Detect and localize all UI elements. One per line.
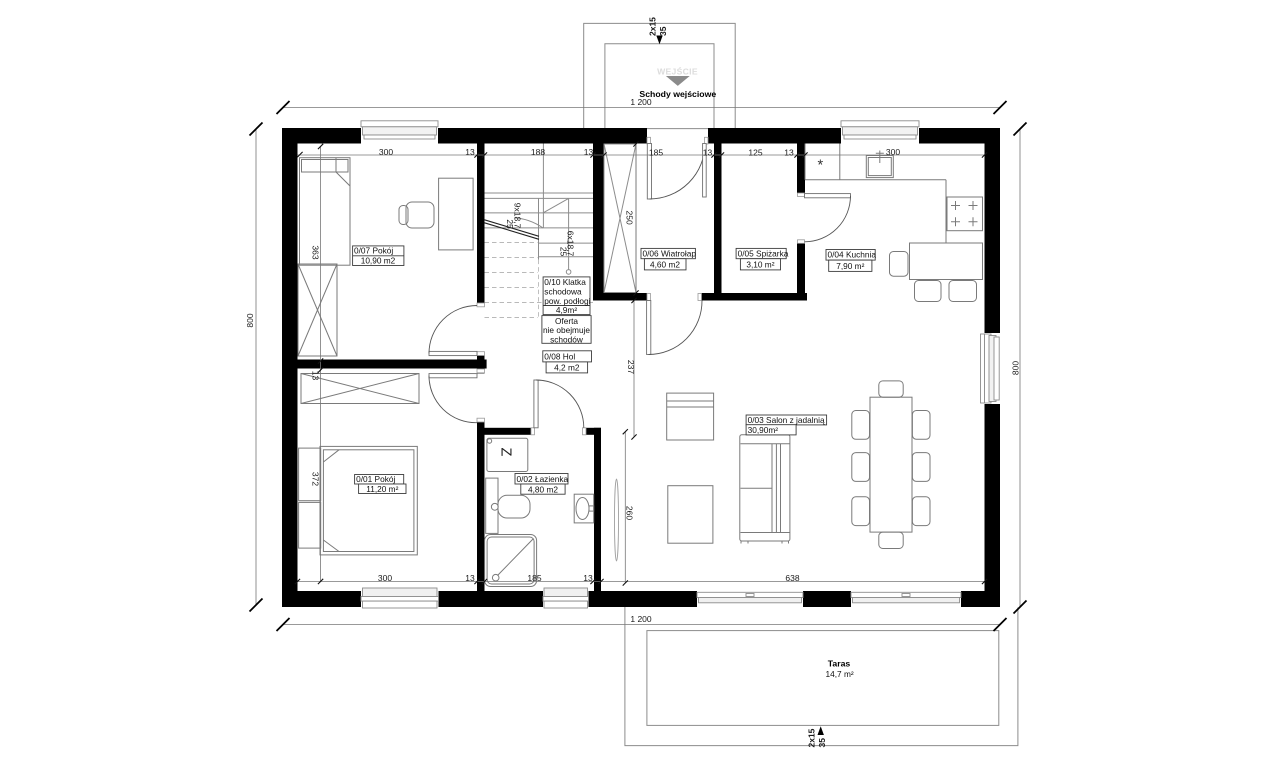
svg-text:3,10 m²: 3,10 m² [746, 260, 774, 270]
svg-text:237: 237 [626, 360, 636, 374]
svg-text:schodowa: schodowa [544, 287, 582, 297]
svg-text:13: 13 [784, 148, 794, 158]
svg-text:0/08 Hol: 0/08 Hol [544, 351, 575, 361]
svg-text:13: 13 [583, 573, 593, 583]
svg-text:25: 25 [558, 247, 568, 257]
svg-text:372: 372 [310, 472, 320, 486]
svg-text:188: 188 [531, 147, 545, 157]
svg-text:0/04 Kuchnia: 0/04 Kuchnia [828, 250, 877, 260]
svg-text:WEJŚCIE: WEJŚCIE [657, 66, 698, 77]
svg-text:300: 300 [379, 147, 393, 157]
svg-text:13: 13 [465, 573, 475, 583]
svg-text:13: 13 [310, 371, 320, 381]
svg-text:35: 35 [658, 26, 668, 36]
svg-text:10,90 m2: 10,90 m2 [361, 255, 396, 265]
svg-text:4,80 m2: 4,80 m2 [528, 484, 558, 494]
svg-text:185: 185 [527, 573, 541, 583]
svg-text:2x15: 2x15 [648, 17, 658, 36]
svg-text:13: 13 [703, 148, 713, 158]
svg-text:800: 800 [1011, 361, 1021, 375]
svg-text:0/10 Klatka: 0/10 Klatka [544, 277, 586, 287]
svg-text:Taras: Taras [828, 659, 851, 669]
svg-text:0/06 Wiatrołap: 0/06 Wiatrołap [643, 248, 697, 258]
svg-text:11,20 m²: 11,20 m² [366, 484, 398, 494]
svg-text:4,60 m2: 4,60 m2 [650, 260, 680, 270]
svg-text:300: 300 [378, 573, 392, 583]
svg-text:0/05 Spiżarka: 0/05 Spiżarka [738, 248, 789, 258]
svg-text:30,90m²: 30,90m² [748, 425, 779, 435]
svg-text:1 200: 1 200 [630, 97, 652, 107]
svg-text:800: 800 [245, 313, 255, 327]
svg-text:Z: Z [498, 448, 514, 457]
svg-text:638: 638 [785, 573, 799, 583]
svg-text:7,90 m²: 7,90 m² [836, 261, 864, 271]
svg-text:4,9m²: 4,9m² [556, 305, 577, 315]
svg-text:300: 300 [886, 147, 900, 157]
svg-text:14,7 m²: 14,7 m² [826, 669, 854, 679]
svg-text:0/02 Łazienka: 0/02 Łazienka [517, 474, 569, 484]
svg-text:1 200: 1 200 [630, 614, 652, 624]
svg-text:260: 260 [625, 506, 635, 520]
svg-text:2x15: 2x15 [807, 728, 817, 747]
svg-text:13: 13 [584, 147, 594, 157]
svg-text:*: * [818, 158, 824, 174]
svg-text:363: 363 [310, 245, 320, 259]
svg-text:0/07 Pokój: 0/07 Pokój [354, 246, 393, 256]
svg-text:4,2 m2: 4,2 m2 [554, 363, 580, 373]
svg-text:185: 185 [649, 148, 663, 158]
svg-text:35: 35 [817, 738, 827, 748]
svg-text:250: 250 [624, 211, 634, 225]
svg-text:25: 25 [505, 219, 515, 229]
svg-text:0/03 Salon z jadalnią: 0/03 Salon z jadalnią [748, 415, 825, 425]
svg-text:125: 125 [748, 148, 762, 158]
svg-text:0/01 Pokój: 0/01 Pokój [356, 474, 395, 484]
svg-text:13: 13 [465, 147, 475, 157]
svg-text:schodów: schodów [550, 335, 584, 345]
